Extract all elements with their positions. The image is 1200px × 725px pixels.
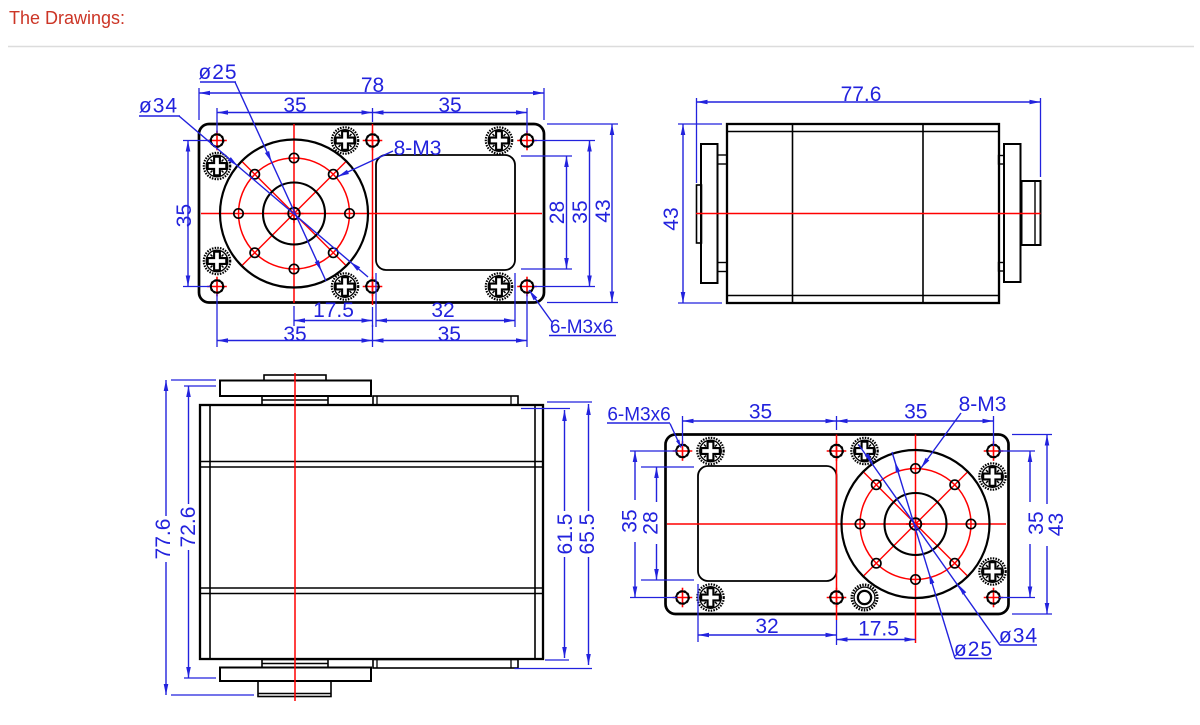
svg-text:77.6: 77.6 (841, 83, 882, 106)
svg-text:77.6: 77.6 (152, 519, 175, 560)
svg-text:32: 32 (755, 615, 778, 638)
svg-text:35: 35 (749, 401, 772, 424)
svg-text:35: 35 (569, 200, 592, 223)
svg-text:28: 28 (640, 511, 663, 534)
svg-text:8-M3: 8-M3 (394, 137, 442, 160)
svg-text:32: 32 (431, 299, 454, 322)
svg-text:ø34: ø34 (999, 625, 1038, 648)
svg-text:61.5: 61.5 (554, 514, 577, 555)
svg-text:35: 35 (438, 323, 461, 346)
svg-text:35: 35 (619, 509, 642, 532)
svg-text:17.5: 17.5 (313, 299, 354, 322)
svg-text:35: 35 (438, 94, 461, 117)
svg-text:The Drawings:: The Drawings: (9, 8, 125, 28)
svg-text:78: 78 (361, 74, 384, 97)
svg-text:17.5: 17.5 (858, 618, 899, 641)
svg-text:ø25: ø25 (954, 638, 993, 661)
svg-text:35: 35 (283, 323, 306, 346)
svg-text:8-M3: 8-M3 (959, 393, 1007, 416)
svg-text:35: 35 (283, 94, 306, 117)
svg-text:43: 43 (592, 199, 615, 222)
svg-text:43: 43 (1045, 513, 1068, 536)
svg-text:43: 43 (660, 207, 683, 230)
svg-text:ø34: ø34 (139, 95, 178, 118)
svg-text:28: 28 (546, 201, 569, 224)
svg-text:72.6: 72.6 (177, 507, 200, 548)
svg-text:35: 35 (904, 401, 927, 424)
svg-text:35: 35 (173, 204, 196, 227)
svg-text:65.5: 65.5 (576, 514, 599, 555)
svg-text:ø25: ø25 (198, 61, 237, 84)
